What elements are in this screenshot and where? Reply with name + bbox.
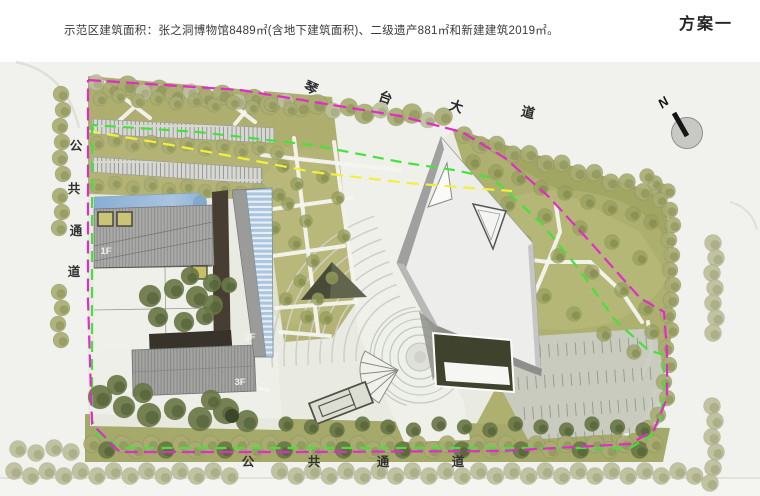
site-plan-drawing: N 琴 台 大 道 公 共 通 道 公 共 通 道 1F 3F 3F	[0, 0, 760, 496]
floor-label-south-3f: 3F	[234, 377, 245, 388]
roof-skylight	[117, 212, 132, 226]
bottom-road-strip	[0, 479, 760, 496]
floor-label-1f: 1F	[100, 246, 111, 257]
passage-left-char: 公	[70, 139, 83, 153]
passage-bottom-char: 道	[452, 454, 465, 469]
passage-left-char: 道	[68, 264, 81, 279]
floor-label-tower-3f: 3F	[244, 332, 255, 343]
passage-bottom-char: 公	[242, 455, 255, 469]
area-description: 示范区建筑面积：张之洞博物馆8489㎡(含地下建筑面积)、二级遗产881㎡和新建…	[64, 22, 559, 38]
passage-bottom-char: 共	[308, 454, 321, 469]
passage-left-char: 通	[70, 223, 83, 238]
site-plan-page: N 琴 台 大 道 公 共 通 道 公 共 通 道 1F 3F 3F 示范区建筑…	[0, 0, 760, 496]
plan-title: 方案一	[679, 10, 733, 34]
main-roof-1f	[94, 205, 214, 268]
passage-left-char: 共	[68, 181, 81, 196]
dark-tree	[225, 409, 239, 423]
passage-bottom-char: 通	[377, 454, 390, 469]
roof-skylight	[98, 212, 113, 226]
dark-pavilion	[433, 333, 514, 392]
